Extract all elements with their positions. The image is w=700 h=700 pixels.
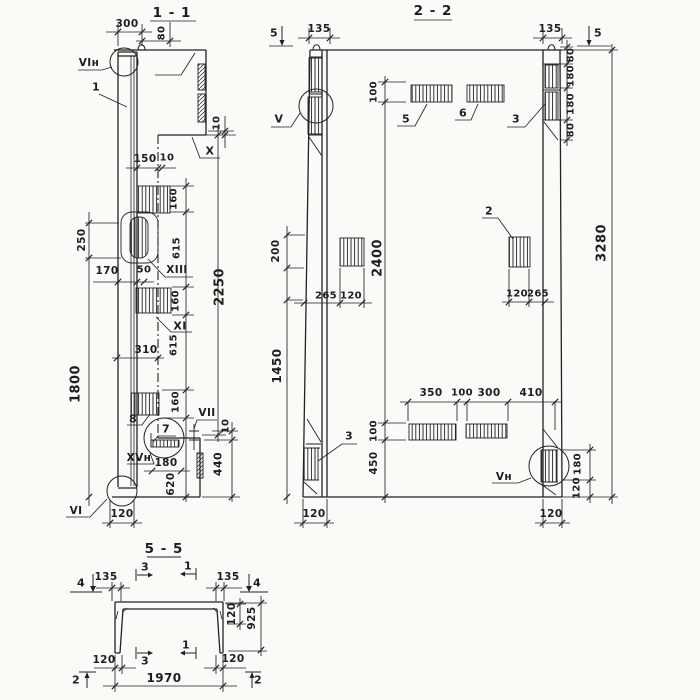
rebar-col-left-1: [309, 58, 322, 92]
rebar-col-right-3: [541, 450, 557, 482]
section-arrow: [148, 573, 153, 578]
embed-square-right: [509, 237, 530, 267]
section-arrow: [250, 672, 255, 678]
rebar-field-bottom-2: [466, 424, 507, 438]
section-arrow: [246, 586, 252, 592]
slot-bar: [130, 217, 148, 258]
rebar-field-bottom-1: [409, 424, 456, 440]
detail-circle-bottom: [107, 476, 137, 506]
detail-7-plate: [151, 440, 179, 447]
section-2-2-linework: [269, 20, 618, 528]
embed-square-left: [340, 238, 364, 266]
view-title-5-5: 5 - 5: [145, 541, 184, 557]
rebar-col-left-2: [308, 97, 322, 134]
rebar-zone: [131, 393, 159, 415]
embed-plate-top-2: [198, 94, 205, 122]
section-arrow: [180, 651, 185, 656]
embed-plate-bottom: [197, 453, 203, 478]
drawing-sheet: 1 - 1 2 - 2 5 - 5 30080VIн110X1501016025…: [0, 0, 700, 700]
section-arrow: [85, 672, 90, 678]
rebar-field-5: [411, 85, 452, 102]
rebar-col-right-1: [545, 65, 558, 88]
section-1-1-linework: [66, 21, 240, 528]
section-arrow: [90, 586, 96, 592]
rebar-zone: [136, 288, 171, 313]
view-title-1-1: 1 - 1: [153, 5, 192, 21]
rebar-col-left-3: [304, 448, 318, 480]
section-arrow: [280, 40, 285, 46]
section-arrow: [587, 40, 592, 46]
embed-plate-top-1: [198, 64, 205, 90]
section-5-5-linework: [70, 557, 268, 692]
view-title-2-2: 2 - 2: [414, 3, 453, 19]
rebar-field-6: [467, 85, 504, 102]
drawing-linework: [0, 0, 700, 700]
section-arrow: [148, 651, 153, 656]
section-arrow: [180, 572, 185, 577]
rebar-col-right-2: [545, 92, 558, 120]
rebar-zone: [137, 186, 170, 213]
